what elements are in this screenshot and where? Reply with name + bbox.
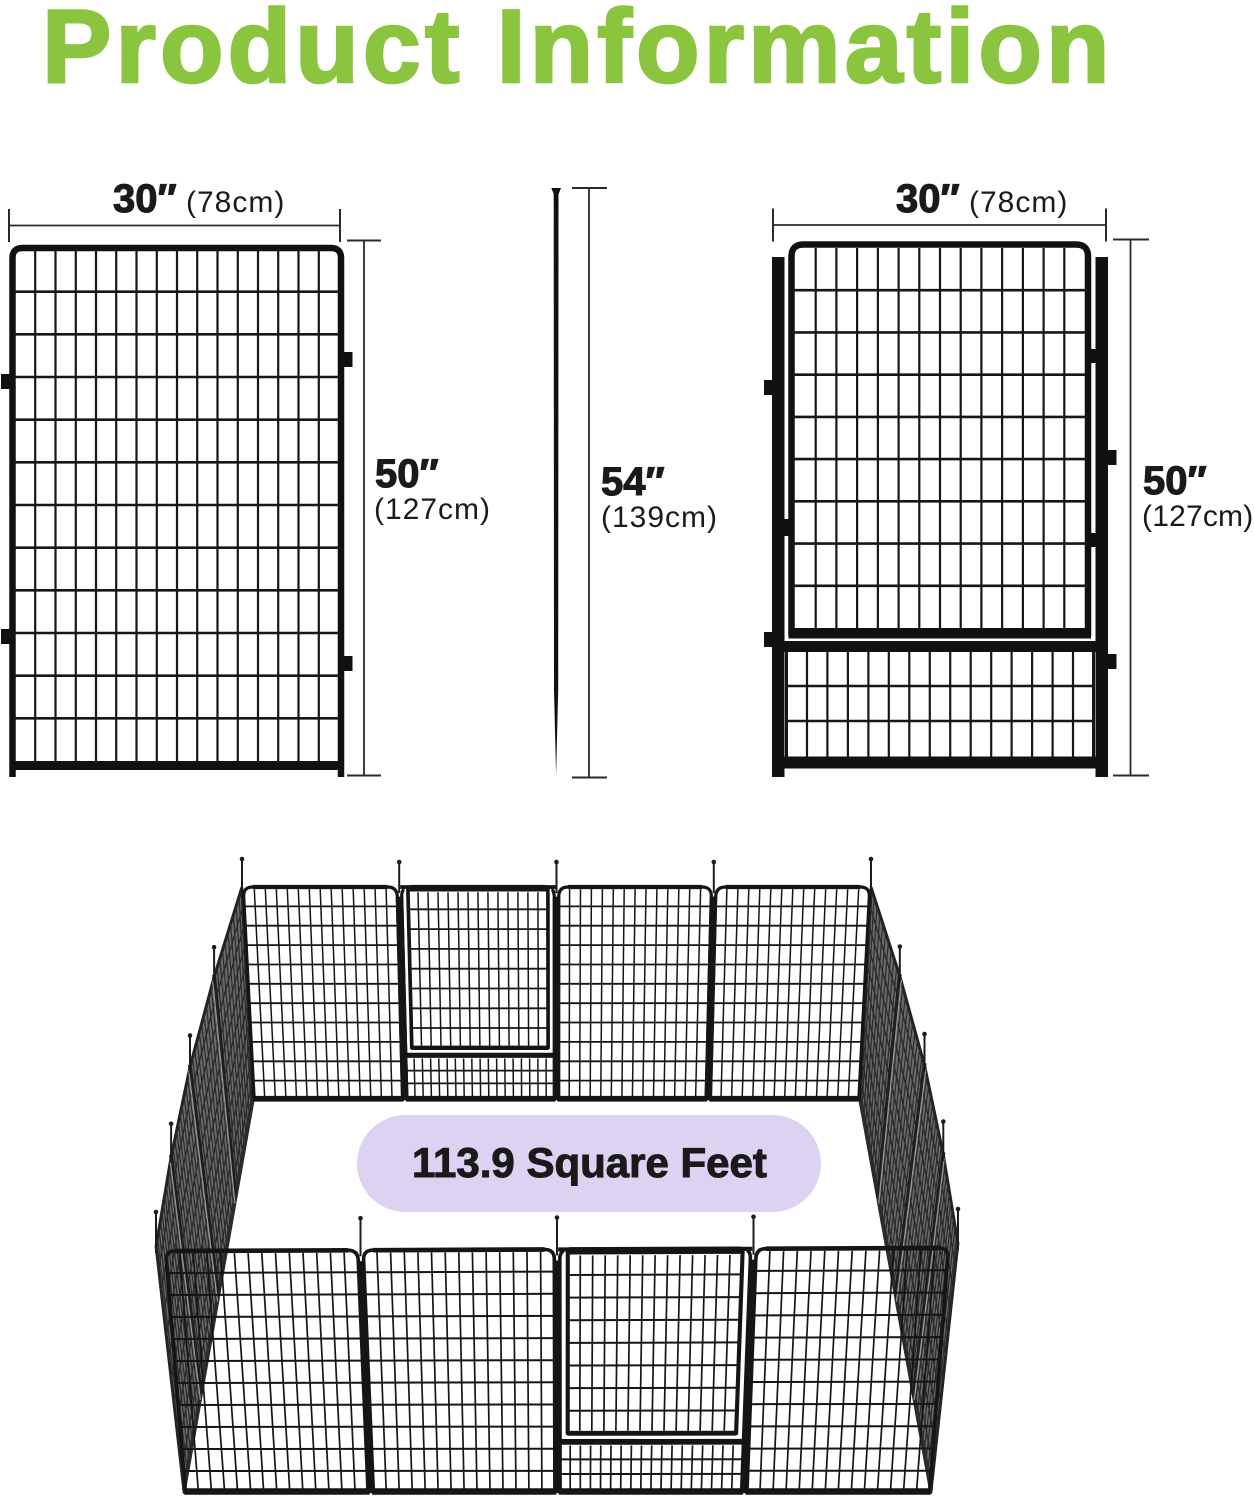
svg-text:(127cm): (127cm) — [1142, 500, 1253, 533]
svg-text:(78cm): (78cm) — [186, 186, 285, 219]
svg-text:(127cm): (127cm) — [374, 493, 491, 526]
svg-text:50″: 50″ — [375, 452, 439, 496]
svg-text:30″: 30″ — [113, 177, 177, 221]
svg-text:(139cm): (139cm) — [601, 501, 718, 534]
svg-text:54″: 54″ — [601, 460, 665, 504]
svg-text:113.9 Square Feet: 113.9 Square Feet — [412, 1139, 767, 1186]
svg-text:(78cm): (78cm) — [969, 186, 1068, 219]
svg-text:30″: 30″ — [896, 177, 960, 221]
svg-text:50″: 50″ — [1143, 459, 1207, 503]
